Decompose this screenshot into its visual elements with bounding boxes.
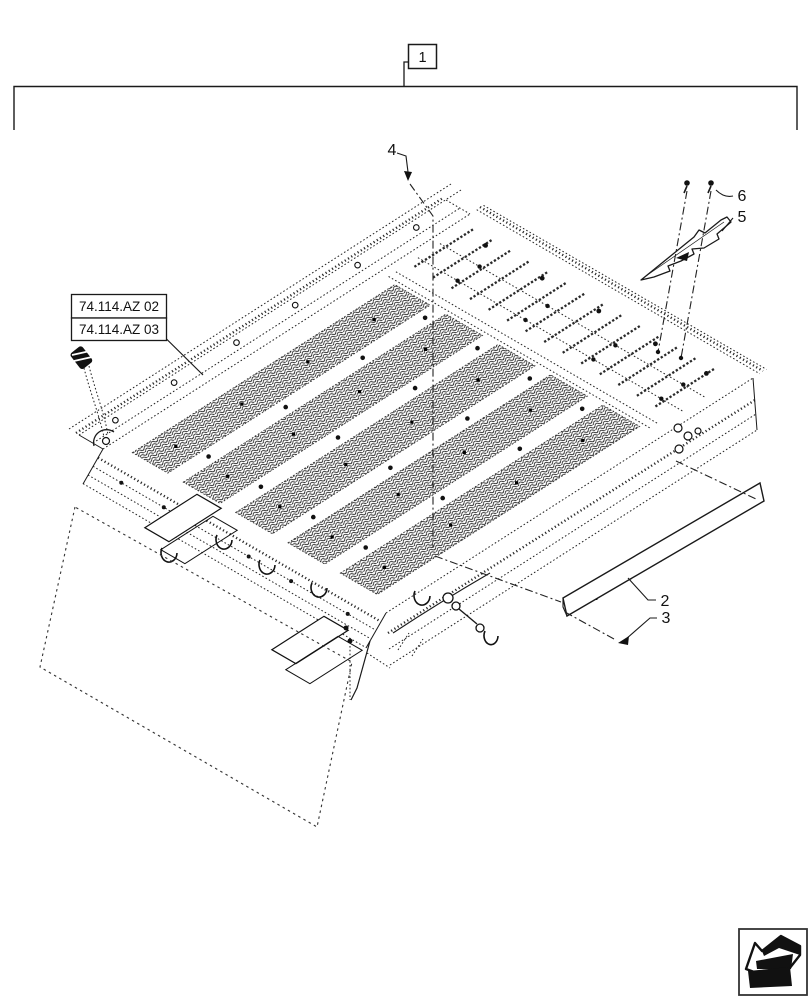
nut (476, 624, 484, 632)
bracket-line (14, 87, 797, 131)
band-bolt (344, 463, 347, 466)
grid-plate (272, 616, 348, 663)
strip-bolt (206, 454, 211, 459)
axis-end-bolt (656, 350, 660, 354)
reference-label-2[interactable]: 74.114.AZ 03 (79, 322, 159, 337)
band-bolt (306, 360, 309, 363)
band-bolt (174, 445, 177, 448)
hook (259, 560, 275, 574)
callout-1-label[interactable]: 1 (418, 50, 426, 66)
rail-left-cap (79, 435, 103, 449)
rail-bolt (414, 225, 420, 231)
callout-4-leader (397, 153, 408, 172)
crank-tube-line (84, 368, 104, 437)
band-bolt (226, 475, 229, 478)
band-bolt (372, 318, 375, 321)
screw-axis-line-2 (681, 191, 711, 358)
band-bolt (529, 409, 532, 412)
rail-bolt (355, 262, 361, 268)
louver-bolt (681, 382, 685, 386)
corner-bolt (348, 639, 353, 644)
band-bolt (463, 451, 466, 454)
strip-bolt (283, 405, 288, 410)
band-bolt (358, 390, 361, 393)
band-bolt (331, 535, 334, 538)
screw (708, 180, 714, 186)
louver-bolt (613, 343, 617, 347)
band-bolt (240, 403, 243, 406)
blade-fold-line (646, 222, 724, 276)
callout-3-arrowhead (618, 636, 629, 645)
roller (443, 593, 453, 603)
sieve-assembly-diagram: 1 74.114.AZ 02 74.114.AZ 03 (0, 0, 812, 1000)
corner-pointer (367, 653, 390, 668)
rail-bolt (234, 340, 240, 346)
rear-rail-bolt (653, 341, 658, 346)
strip-bolt (336, 435, 341, 440)
hook (484, 631, 498, 645)
strip-bolt (440, 496, 445, 501)
strip-bolt (465, 416, 470, 421)
callout-2-label[interactable]: 2 (661, 593, 670, 610)
back-arrow-icon[interactable] (739, 929, 807, 995)
rail-end-cap (446, 200, 470, 214)
louver-bolt (545, 304, 549, 308)
tensioner-cluster (344, 593, 485, 700)
strip-bolt (360, 356, 365, 361)
louver-bolt (523, 318, 527, 322)
louver-bolt (659, 397, 663, 401)
band-bolt (292, 432, 295, 435)
strip-axis-line-bolt (565, 612, 614, 639)
pivot-bolt (103, 438, 110, 445)
strip-bolt (528, 376, 533, 381)
adjustment-crank (69, 345, 108, 437)
callout-4-arrowhead (404, 171, 412, 181)
side-face-right-cap (753, 378, 757, 430)
beam-left-cap (83, 449, 103, 484)
reference-label-1[interactable]: 74.114.AZ 02 (79, 299, 159, 314)
roller (452, 602, 460, 610)
callout-4-label[interactable]: 4 (388, 142, 397, 159)
rear-rail-bolt (596, 309, 601, 314)
side-bolt (675, 445, 683, 453)
reference-leader-line (167, 339, 204, 375)
callout-3-leader (626, 618, 657, 639)
reference-box-group: 74.114.AZ 02 74.114.AZ 03 (72, 295, 204, 376)
strip-axis-line-right (676, 461, 756, 499)
rear-rail-bolt (704, 371, 709, 376)
strip-bolt (518, 447, 523, 452)
side-bolt (695, 428, 701, 434)
callout-3-label[interactable]: 3 (662, 610, 671, 627)
band-bolt (278, 505, 281, 508)
strip-bolt (413, 386, 418, 391)
rail-bolt (292, 302, 298, 308)
strip-bolt (259, 485, 264, 490)
band-bolt (476, 378, 479, 381)
parts-diagram-page: 1 74.114.AZ 02 74.114.AZ 03 (0, 0, 812, 1000)
callout-5-label[interactable]: 5 (738, 209, 747, 226)
strip-bolt (475, 346, 480, 351)
louver-bolt (591, 357, 595, 361)
rear-rail-bolt (540, 276, 545, 281)
side-bolt (684, 432, 692, 440)
band-bolt (410, 421, 413, 424)
callout-2-leader (628, 578, 656, 600)
part-6-screws (684, 180, 714, 193)
strip-axis-line-left (435, 556, 561, 602)
corner-bolt (344, 626, 349, 631)
strip-bolt (311, 515, 316, 520)
strip-bolt (423, 316, 428, 321)
rear-rail-bolt (483, 243, 488, 248)
strip-bolt (580, 407, 585, 412)
axis-end-bolt (679, 356, 683, 360)
assembly-bracket: 1 (14, 45, 797, 131)
louver-bolt (477, 264, 481, 268)
strip-bolt (388, 466, 393, 471)
band-bolt (515, 481, 518, 484)
band-bolt (581, 439, 584, 442)
band-bolt (383, 566, 386, 569)
band-bolt (449, 524, 452, 527)
band-bolt (424, 348, 427, 351)
louver-bolt (455, 279, 459, 283)
callout-6-leader (716, 190, 733, 196)
screw (684, 180, 690, 186)
rail-bolt (113, 417, 119, 423)
side-bolt (674, 424, 682, 432)
band-bolt (397, 493, 400, 496)
beam-bolt (346, 612, 350, 616)
callout-6-label[interactable]: 6 (738, 188, 747, 205)
beam-bolt (119, 481, 123, 485)
crank-tube-line (89, 366, 108, 435)
rail-bolt (171, 380, 177, 386)
strip-bolt (363, 545, 368, 550)
side-hatch (398, 633, 423, 656)
part-5-blade (641, 217, 731, 280)
